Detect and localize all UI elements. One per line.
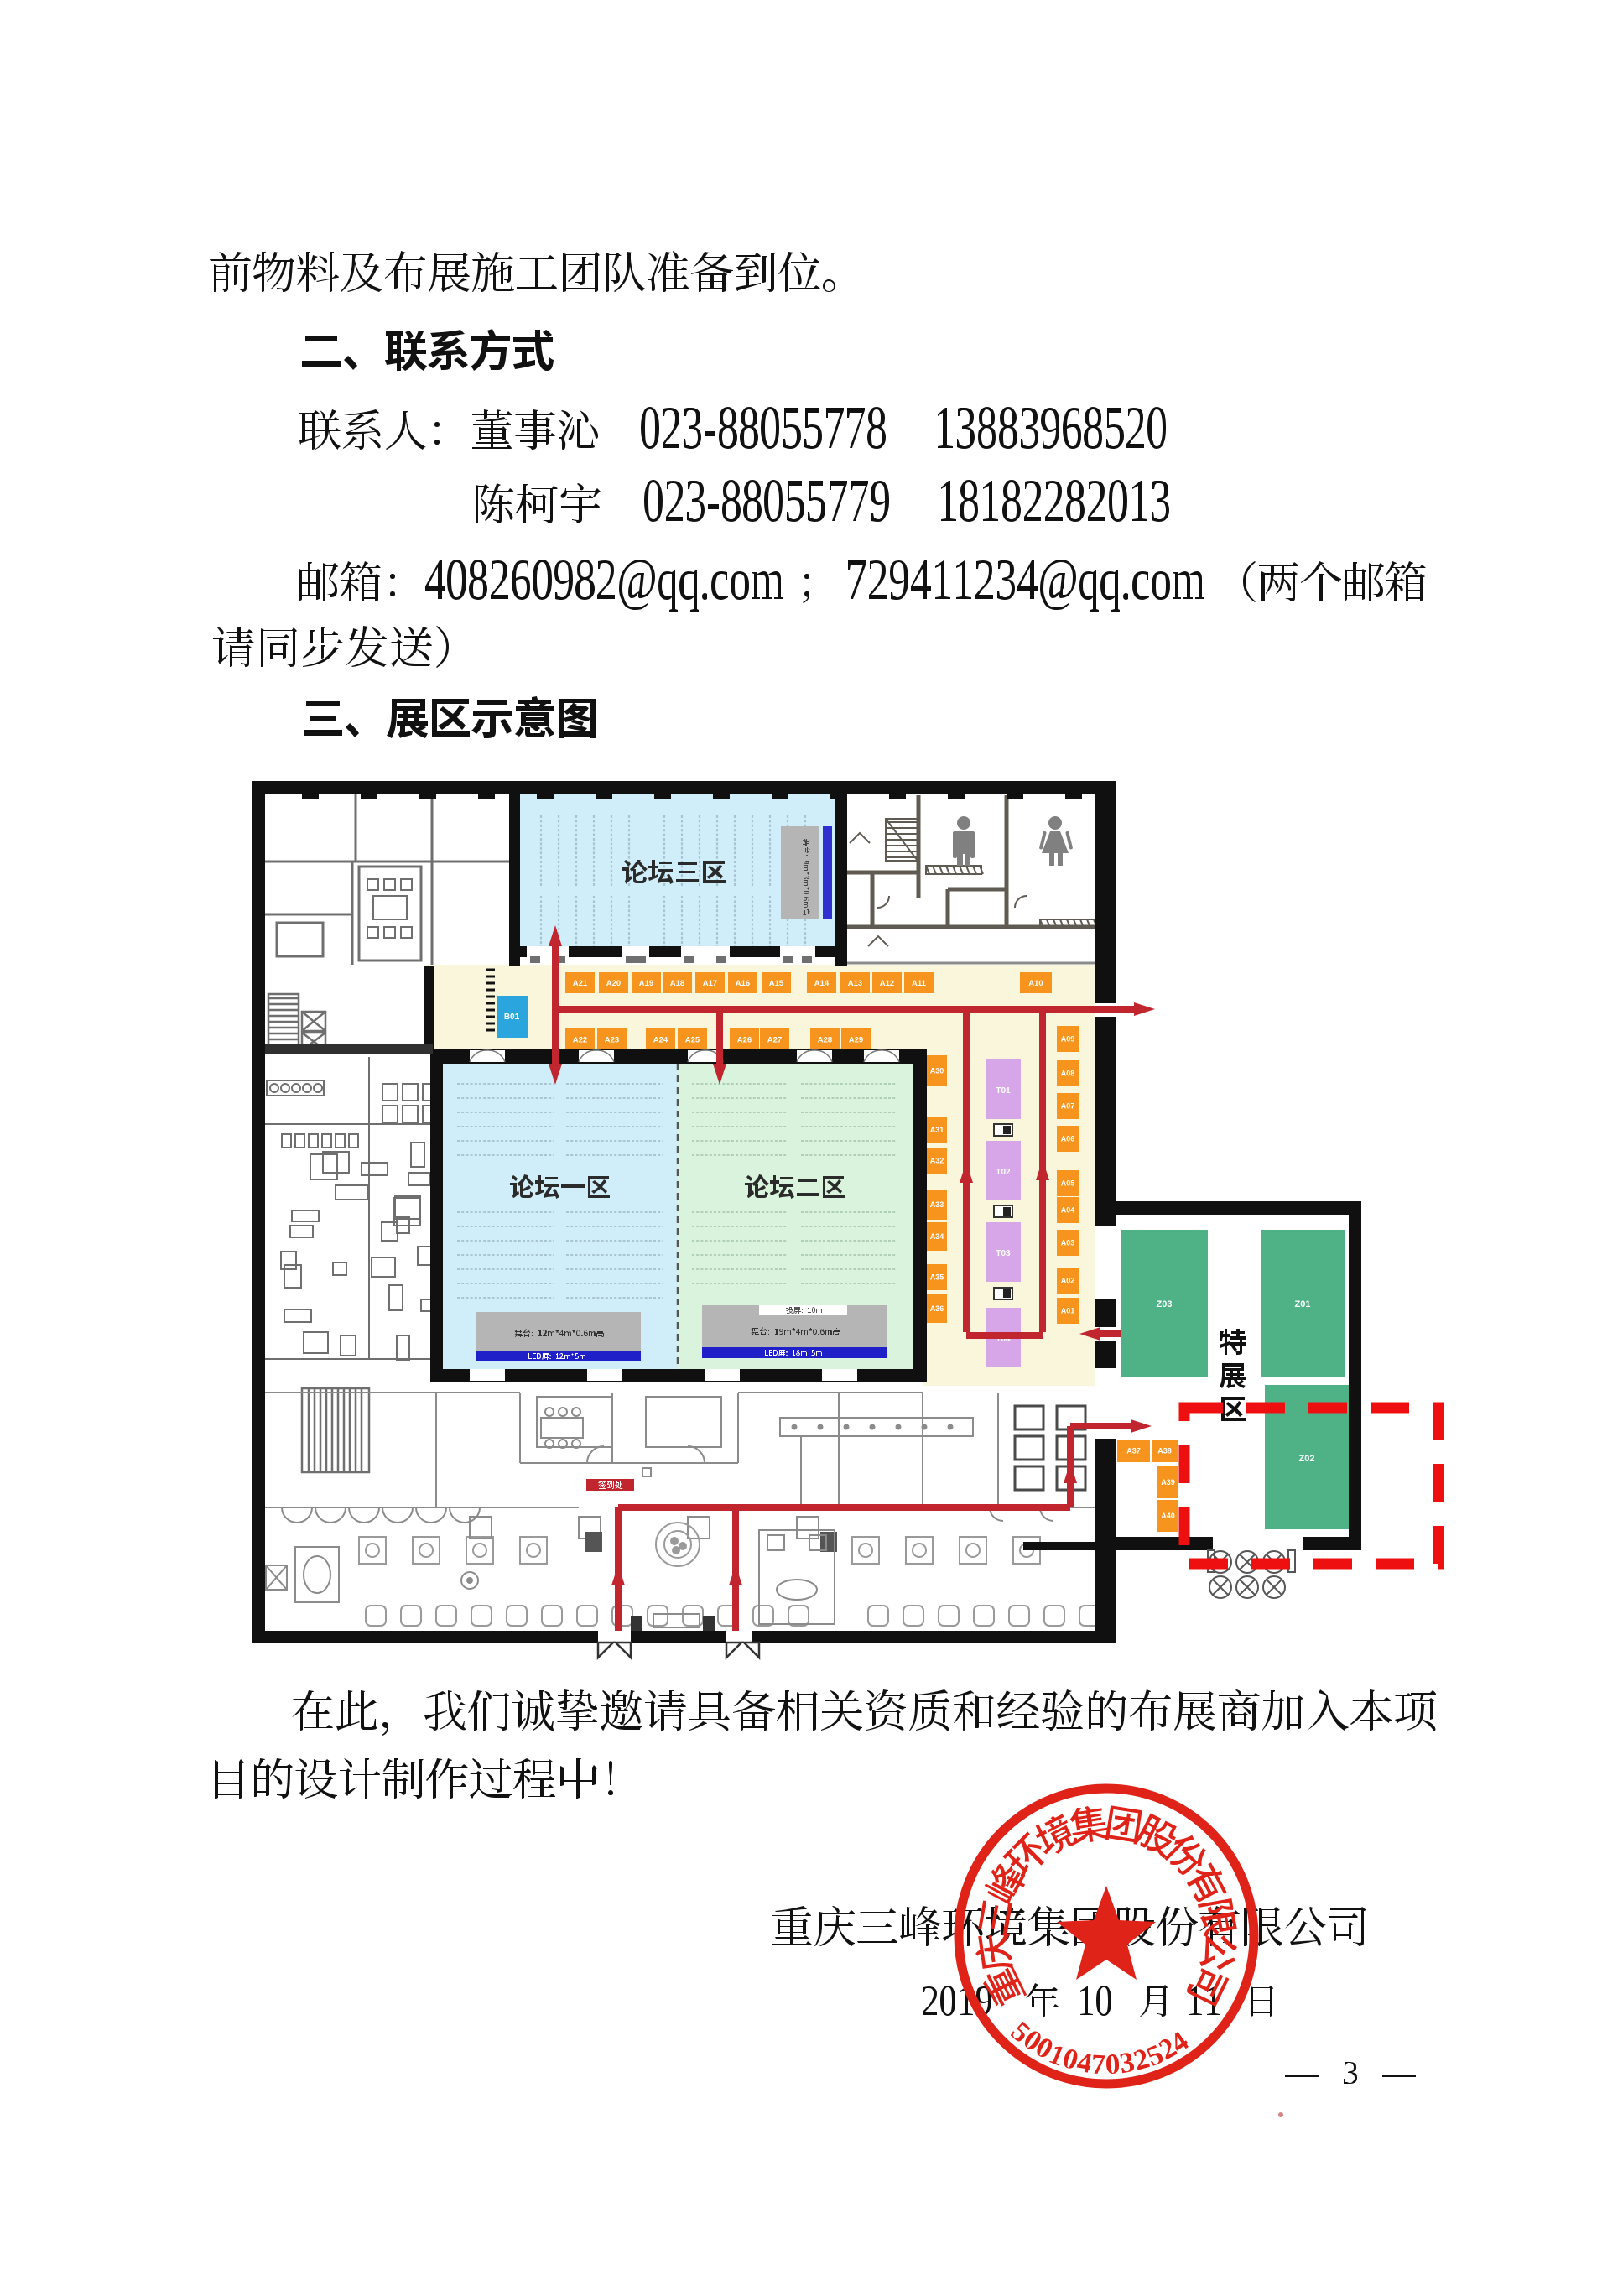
svg-text:A11: A11 — [912, 979, 927, 988]
svg-text:A37: A37 — [1126, 1447, 1141, 1455]
svg-text:A19: A19 — [639, 979, 653, 988]
svg-text:A13: A13 — [848, 979, 862, 988]
svg-text:A04: A04 — [1061, 1206, 1075, 1215]
svg-text:A31: A31 — [930, 1126, 944, 1134]
svg-text:A09: A09 — [1061, 1035, 1075, 1044]
svg-text:A16: A16 — [736, 979, 750, 988]
svg-text:A26: A26 — [737, 1035, 752, 1044]
svg-text:A27: A27 — [767, 1035, 782, 1044]
svg-text:A22: A22 — [573, 1035, 587, 1044]
svg-text:A38: A38 — [1157, 1447, 1172, 1455]
svg-text:A39: A39 — [1161, 1478, 1175, 1486]
svg-text:A29: A29 — [849, 1035, 863, 1044]
svg-text:A06: A06 — [1061, 1135, 1075, 1143]
svg-text:Z02: Z02 — [1299, 1454, 1315, 1464]
svg-text:A33: A33 — [930, 1200, 944, 1209]
svg-text:T02: T02 — [996, 1168, 1011, 1177]
svg-text:A24: A24 — [653, 1035, 668, 1044]
svg-text:A23: A23 — [605, 1035, 619, 1044]
svg-text:A07: A07 — [1061, 1102, 1075, 1111]
svg-text:T03: T03 — [996, 1249, 1011, 1258]
svg-text:A05: A05 — [1061, 1179, 1075, 1188]
svg-text:A40: A40 — [1161, 1512, 1175, 1520]
svg-text:T01: T01 — [996, 1086, 1011, 1096]
svg-text:A10: A10 — [1028, 979, 1043, 988]
svg-text:A17: A17 — [703, 979, 717, 988]
svg-text:A36: A36 — [930, 1304, 944, 1313]
svg-text:A32: A32 — [930, 1157, 944, 1165]
svg-text:A25: A25 — [685, 1035, 700, 1044]
svg-text:A35: A35 — [930, 1273, 944, 1282]
svg-text:A02: A02 — [1061, 1277, 1075, 1285]
svg-text:A15: A15 — [769, 979, 784, 988]
svg-text:Z03: Z03 — [1157, 1299, 1173, 1309]
svg-text:Z01: Z01 — [1295, 1299, 1311, 1309]
svg-text:A28: A28 — [818, 1035, 832, 1044]
svg-text:A30: A30 — [930, 1067, 944, 1075]
svg-text:A14: A14 — [814, 979, 830, 988]
svg-text:B01: B01 — [504, 1013, 520, 1022]
svg-text:A21: A21 — [573, 979, 588, 988]
svg-text:A03: A03 — [1061, 1239, 1075, 1247]
svg-text:A18: A18 — [670, 979, 684, 988]
svg-text:A01: A01 — [1061, 1307, 1075, 1315]
svg-text:A20: A20 — [606, 979, 621, 988]
svg-text:A08: A08 — [1061, 1070, 1075, 1078]
svg-text:A12: A12 — [880, 979, 894, 988]
svg-text:A34: A34 — [930, 1232, 944, 1241]
